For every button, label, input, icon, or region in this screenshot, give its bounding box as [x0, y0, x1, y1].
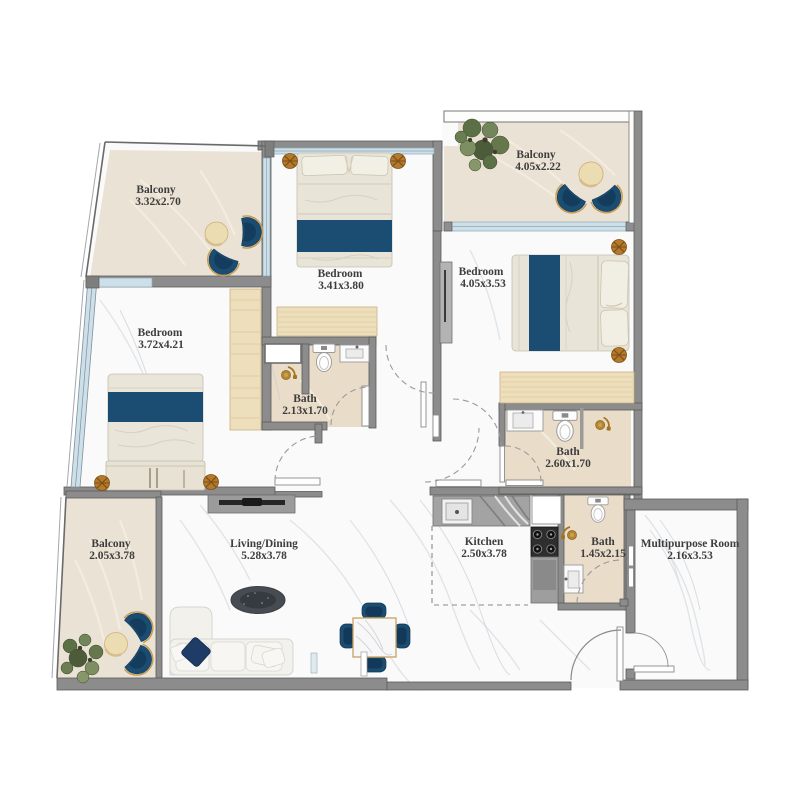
svg-text:3.32x2.70: 3.32x2.70: [135, 196, 181, 208]
svg-text:Balcony: Balcony: [516, 149, 556, 161]
svg-text:Bath: Bath: [556, 446, 580, 458]
svg-text:Bedroom: Bedroom: [459, 266, 504, 278]
svg-text:4.05x2.22: 4.05x2.22: [515, 161, 561, 173]
svg-text:3.41x3.80: 3.41x3.80: [318, 280, 364, 292]
svg-text:2.50x3.78: 2.50x3.78: [461, 548, 507, 560]
svg-text:4.05x3.53: 4.05x3.53: [460, 278, 506, 290]
svg-text:3.72x4.21: 3.72x4.21: [138, 339, 184, 351]
svg-text:Bedroom: Bedroom: [318, 268, 363, 280]
svg-text:Living/Dining: Living/Dining: [230, 538, 298, 550]
svg-text:Bath: Bath: [591, 536, 615, 548]
svg-text:2.16x3.53: 2.16x3.53: [667, 550, 713, 562]
svg-text:2.60x1.70: 2.60x1.70: [545, 458, 591, 470]
svg-text:Kitchen: Kitchen: [465, 536, 504, 548]
svg-text:Bedroom: Bedroom: [138, 327, 183, 339]
svg-text:Balcony: Balcony: [136, 184, 176, 196]
svg-text:Multipurpose Room: Multipurpose Room: [641, 538, 740, 550]
svg-text:Bath: Bath: [293, 393, 317, 405]
svg-text:2.05x3.78: 2.05x3.78: [89, 550, 135, 562]
svg-text:1.45x2.15: 1.45x2.15: [580, 548, 626, 560]
svg-text:5.28x3.78: 5.28x3.78: [241, 550, 287, 562]
svg-text:2.13x1.70: 2.13x1.70: [282, 405, 328, 417]
svg-text:Balcony: Balcony: [91, 538, 131, 550]
